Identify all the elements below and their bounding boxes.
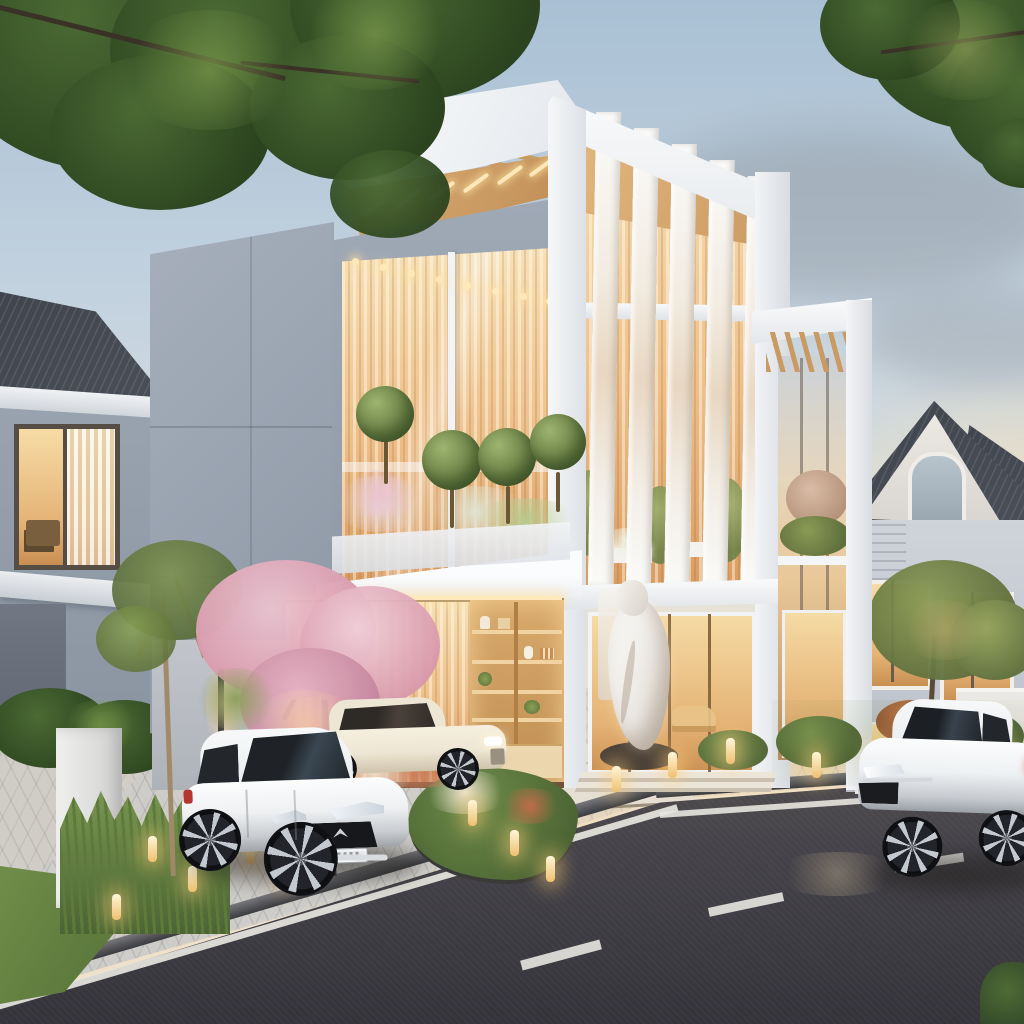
topiary-tree — [530, 414, 586, 470]
center-bed-flowers-red — [498, 788, 562, 824]
left-house-window-mullion — [63, 429, 67, 565]
recessed-downlight — [520, 293, 527, 300]
overhanging-tree-left-highlight — [120, 10, 300, 130]
white-road-sedan — [855, 697, 1024, 903]
cream-sedan-grille — [490, 748, 505, 764]
shelf-object-vase — [524, 646, 533, 659]
display-shelf-divider — [514, 602, 518, 748]
recessed-downlight — [352, 258, 359, 265]
shelf-object-vase — [480, 616, 490, 629]
garden-bollard-light — [612, 766, 621, 792]
shelf-object-plant — [524, 700, 540, 714]
garden-bollard-light — [510, 830, 519, 856]
statue-head — [616, 580, 648, 616]
overhanging-tree-right-highlight — [900, 0, 1024, 100]
road-sedan-grille — [858, 781, 899, 804]
left-house-window-curtain — [66, 429, 115, 565]
pergola-balcony-bush — [780, 516, 850, 556]
recessed-downlight — [380, 264, 387, 271]
pergola-module-slab-edge — [778, 556, 852, 565]
entry-interior-chair — [672, 706, 716, 732]
cream-sedan-headlight — [484, 736, 502, 746]
garden-bollard-light — [112, 894, 121, 920]
topiary-tree — [356, 386, 414, 442]
garden-bollard-light — [812, 752, 821, 778]
shelf-object-plant — [478, 672, 492, 686]
shelf-object-books — [540, 648, 554, 659]
garden-bollard-light — [668, 752, 677, 778]
garden-bollard-light — [468, 800, 477, 826]
hatchback-rear-wheel — [178, 808, 242, 872]
topiary-trunk — [450, 488, 454, 528]
balcony-flowers — [346, 470, 416, 518]
recessed-downlight — [408, 270, 415, 277]
recessed-downlight — [436, 276, 443, 283]
topiary-trunk — [556, 472, 560, 512]
topiary-trunk — [506, 486, 510, 524]
white-hatchback — [179, 724, 410, 890]
right-house-tree-highlight — [900, 600, 990, 660]
garden-bollard-light — [726, 738, 735, 764]
overhanging-tree-left-frond — [330, 150, 450, 238]
slender-tree-foliage — [96, 606, 176, 672]
topiary-trunk — [384, 438, 388, 484]
recessed-downlight — [492, 288, 499, 295]
hatchback-taillight — [183, 790, 192, 804]
garden-bollard-light — [148, 836, 157, 862]
road-sedan-front-wheel — [881, 816, 943, 878]
recessed-downlight — [464, 282, 471, 289]
shelf-object-box — [498, 618, 510, 629]
topiary-tree — [478, 428, 536, 486]
road-sedan-rear-wheel — [978, 809, 1024, 867]
garden-bollard-light — [546, 856, 555, 882]
left-house-window-furniture — [26, 520, 60, 546]
architectural-rendering-scene — [0, 0, 1024, 1024]
topiary-tree — [422, 430, 482, 490]
